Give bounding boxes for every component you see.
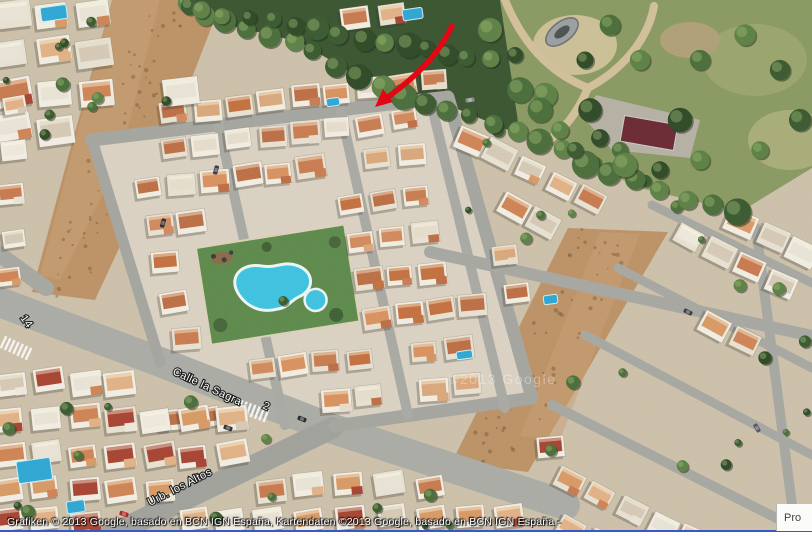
aerial-imagery[interactable]: Calle la Sagra 2 Urb. los Altos 14 ©2013… <box>0 0 812 531</box>
bottom-border <box>0 530 812 536</box>
report-problem-link-partial[interactable]: Pro <box>776 504 812 531</box>
map-attribution: Grafiken © 2013 Google, basado en BCN IG… <box>7 516 777 528</box>
google-watermark: ©2013 Google <box>448 371 557 387</box>
map-viewport[interactable]: Calle la Sagra 2 Urb. los Altos 14 ©2013… <box>0 0 812 536</box>
